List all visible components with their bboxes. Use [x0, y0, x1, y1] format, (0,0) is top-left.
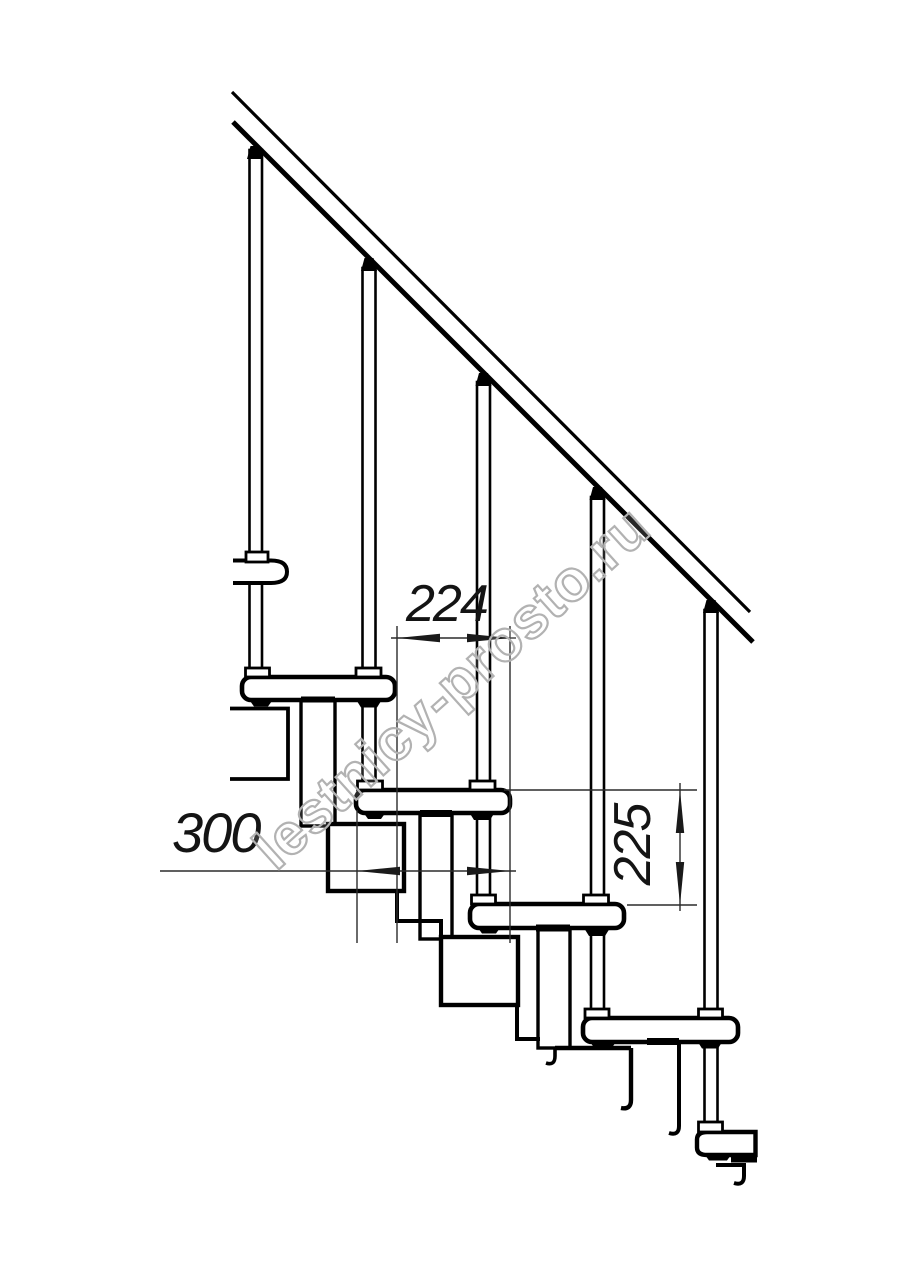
dimension-rise-label: 225	[607, 789, 659, 901]
tread-3	[470, 904, 624, 928]
baluster-2	[363, 268, 376, 786]
tread-2	[356, 790, 510, 813]
module-box-1	[328, 824, 404, 891]
landing-edge	[230, 709, 288, 780]
staircase-technical-drawing: 224 300 225 lestnicy-prosto.ru	[0, 0, 914, 1280]
dimension-width-label: 300	[172, 800, 259, 865]
staircase-linework	[0, 0, 914, 1280]
lower-rail-stub	[233, 561, 287, 584]
module-tube-3	[538, 918, 570, 1048]
handrail	[232, 92, 753, 642]
dimension-run-label: 224	[406, 574, 487, 634]
tread-5	[697, 1132, 756, 1155]
baluster-1	[250, 150, 263, 670]
module-tube-1	[301, 694, 335, 826]
module-box-2	[441, 937, 518, 1005]
